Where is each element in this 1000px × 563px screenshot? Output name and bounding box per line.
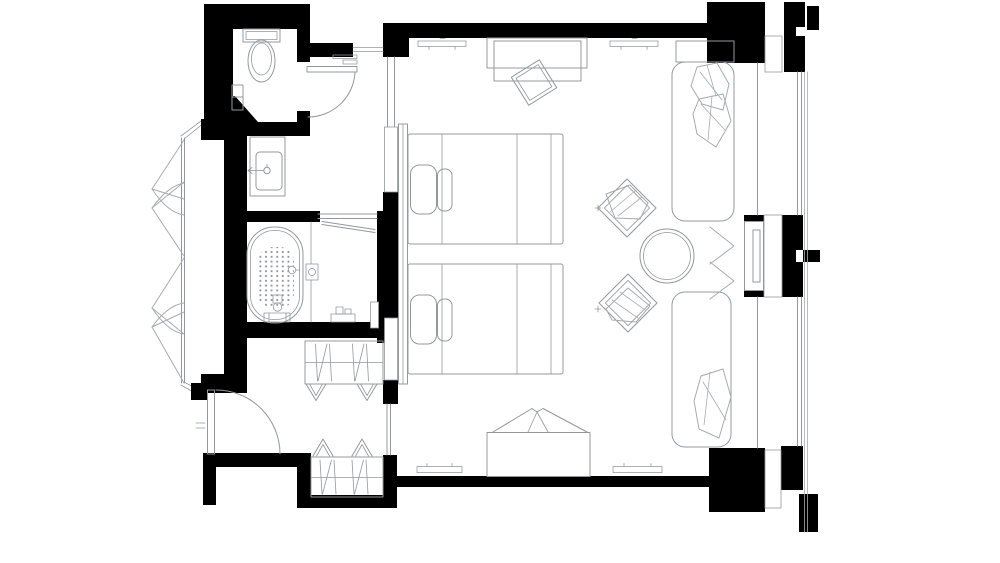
curtain-chevrons [710,227,734,299]
floor-drain [306,264,318,280]
pillow [693,94,731,147]
ceiling-marks [595,205,601,312]
left-casement-bay [152,121,204,396]
wall-diffuser-top-left [418,39,466,50]
luggage-bench-upper [305,341,383,401]
armchair-upper [598,179,656,237]
bathroom [247,214,379,328]
casement-window-leafs [152,140,184,383]
wc-room [232,29,357,117]
bathtub [247,227,303,323]
lounge [417,38,734,477]
bench-with-folded-throw [487,409,590,477]
glass-partition [318,214,377,219]
luggage-bench-lower [311,439,383,497]
pier-insulation-hatch [764,36,782,508]
twin-bed-2 [408,264,563,374]
pillow [438,169,453,211]
right-window-band-lower [758,297,802,448]
entry [196,390,383,497]
pillow [438,299,453,341]
floor-plan [0,0,1000,563]
pillow [411,165,437,214]
stool [511,60,556,105]
console-desk [487,38,587,81]
headboard-panel [399,124,408,384]
pillow [411,295,437,344]
vanity [248,137,285,196]
sleeping-area [399,124,602,384]
pillow [691,63,729,110]
wc-door [307,55,357,117]
window-pier-ac-unit [745,222,764,291]
right-window-band-upper [758,63,802,215]
toilet [243,29,280,82]
round-table [640,229,694,283]
wall-diffuser-bottom-left [417,464,462,473]
wall-diffuser-top-right [610,39,658,50]
entry-door [196,390,280,454]
daybed-upper [672,41,734,221]
armchair-lower [599,274,657,332]
anti-slip-mat [258,247,294,308]
wall-niche [371,302,379,328]
facade-outer-lines [805,72,808,532]
wall-diffuser-bottom-right [613,464,662,473]
floor-plan-canvas [0,0,1000,563]
bath-mixer [331,307,355,322]
shower-area [306,214,379,328]
twin-bed-1 [408,134,563,244]
throw [606,185,648,219]
faucet [248,164,270,174]
daybed-lower [672,292,731,447]
pillow [694,369,731,438]
pivot-shower-door [322,222,375,233]
